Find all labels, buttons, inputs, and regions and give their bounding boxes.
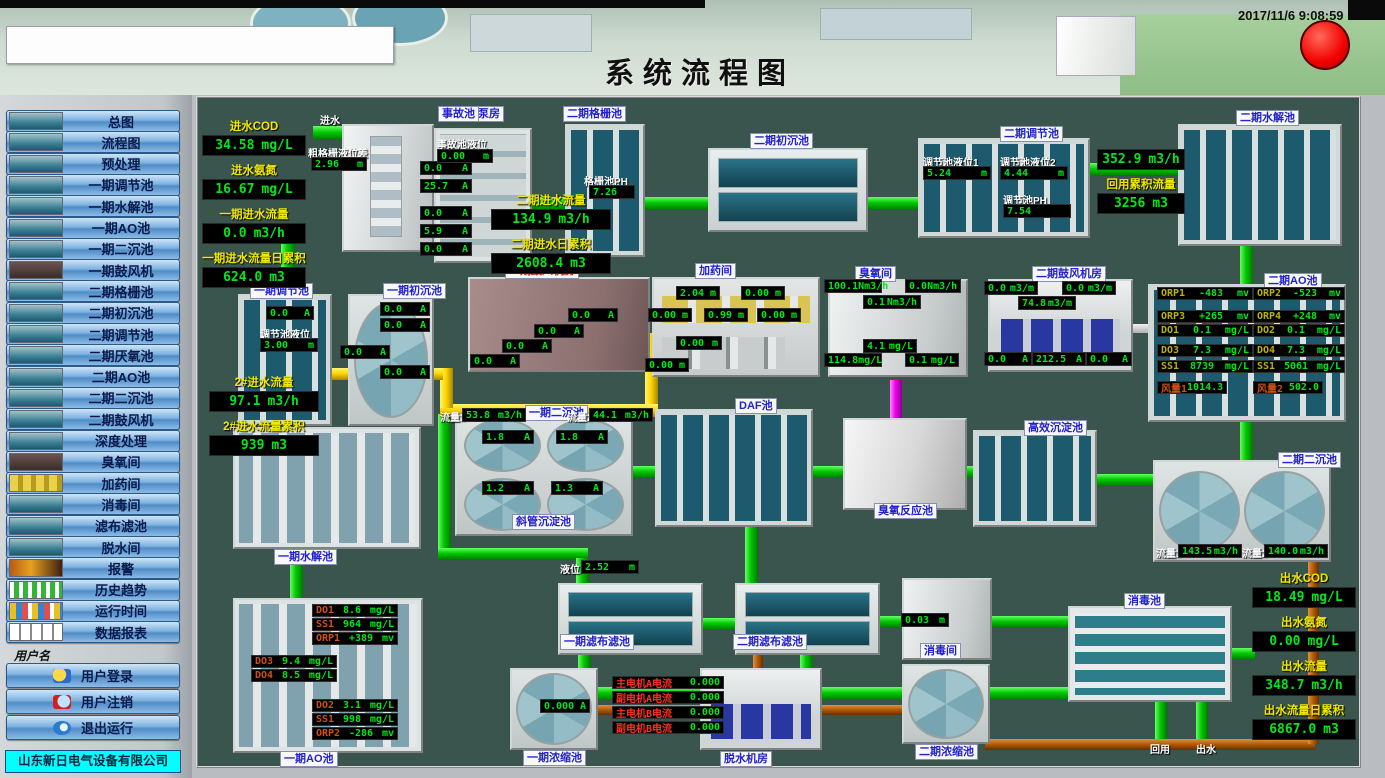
sidebar-item-label: 消毒间 xyxy=(63,495,179,514)
sidebar-item-14[interactable]: 二期二沉池 xyxy=(6,387,180,409)
sidebar-item-label: 一期调节池 xyxy=(63,175,179,194)
nav-thumbnail xyxy=(9,474,63,492)
nav-thumbnail xyxy=(9,602,63,620)
nav-thumbnail xyxy=(9,432,63,450)
sidebar-item-11[interactable]: 二期调节池 xyxy=(6,323,180,345)
username-label: 用户名 xyxy=(14,647,50,664)
sidebar-item-label: 二期调节池 xyxy=(63,325,179,344)
sidebar-item-label: 报警 xyxy=(63,559,179,578)
sidebar-item-5[interactable]: 一期水解池 xyxy=(6,195,180,217)
nav-thumbnail xyxy=(9,282,63,300)
user-button-label: 用户注销 xyxy=(81,692,133,711)
header-blank-panel xyxy=(6,26,394,64)
flow-diagram-panel xyxy=(196,96,1361,768)
sidebar-item-24[interactable]: 运行时间 xyxy=(6,600,180,622)
sidebar-item-23[interactable]: 历史趋势 xyxy=(6,579,180,601)
sidebar-item-6[interactable]: 一期AO池 xyxy=(6,217,180,239)
sidebar-item-3[interactable]: 预处理 xyxy=(6,153,180,175)
nav-thumbnail xyxy=(9,240,63,258)
phase1-regulating-tank-label[interactable]: 一期调节池 xyxy=(250,283,313,299)
phase1-secondary-clarifier-label[interactable]: 一期二沉池 xyxy=(525,405,588,421)
phase1-blower-room-label[interactable]: 一期鼓风机房 xyxy=(505,263,579,279)
ozone-reactor-tank-label[interactable]: 臭氧反应池 xyxy=(874,503,937,519)
nav-thumbnail xyxy=(9,410,63,428)
sidebar-item-16[interactable]: 深度处理 xyxy=(6,430,180,452)
user-login-icon xyxy=(53,669,71,683)
plant-photo-building xyxy=(820,8,972,40)
user-button-label: 退出运行 xyxy=(81,718,133,737)
phase2-thickener-label[interactable]: 二期浓缩池 xyxy=(915,744,978,760)
inclined-tube-sed-tank-label[interactable]: 斜管沉淀池 xyxy=(512,514,575,530)
phase1-ao-tank-label[interactable]: 一期AO池 xyxy=(280,751,338,767)
sidebar-item-21[interactable]: 脱水间 xyxy=(6,536,180,558)
accident-tank-label[interactable]: 事故池 xyxy=(438,106,479,122)
sidebar-item-label: 二期格栅池 xyxy=(63,282,179,301)
plant-photo-building xyxy=(1056,16,1136,76)
page-title: 系统流程图 xyxy=(570,50,830,92)
phase2-ao-tank-label[interactable]: 二期AO池 xyxy=(1264,273,1322,289)
nav-thumbnail xyxy=(9,389,63,407)
sidebar-item-label: 脱水间 xyxy=(63,538,179,557)
sidebar-item-25[interactable]: 数据报表 xyxy=(6,621,180,643)
nav-thumbnail xyxy=(9,581,63,599)
sidebar-item-4[interactable]: 一期调节池 xyxy=(6,174,180,196)
sidebar-item-20[interactable]: 滤布滤池 xyxy=(6,515,180,537)
sidebar-item-label: 滤布滤池 xyxy=(63,516,179,535)
nav-thumbnail xyxy=(9,112,63,130)
nav-thumbnail xyxy=(9,155,63,173)
phase2-blower-room-label[interactable]: 二期鼓风机房 xyxy=(1032,266,1106,282)
top-black-bar xyxy=(0,0,705,8)
dewatering-room-label[interactable]: 脱水机房 xyxy=(720,751,772,767)
nav-thumbnail xyxy=(9,623,63,641)
sidebar-item-19[interactable]: 消毒间 xyxy=(6,493,180,515)
nav-thumbnail xyxy=(9,517,63,535)
sidebar-item-17[interactable]: 臭氧间 xyxy=(6,451,180,473)
phase1-hydrolysis-tank-label[interactable]: 一期水解池 xyxy=(274,549,337,565)
sidebar-item-label: 深度处理 xyxy=(63,431,179,450)
alarm-indicator-button[interactable] xyxy=(1300,20,1350,70)
ozone-room-label[interactable]: 臭氧间 xyxy=(855,266,896,282)
sidebar-item-15[interactable]: 二期鼓风机 xyxy=(6,408,180,430)
phase1-thickener-label[interactable]: 一期浓缩池 xyxy=(523,750,586,766)
sidebar-nav: 总图流程图预处理一期调节池一期水解池一期AO池一期二沉池一期鼓风机二期格栅池二期… xyxy=(0,95,192,778)
header-banner: 系统流程图 2017/11/6 9:08:59 xyxy=(0,0,1385,95)
sidebar-item-label: 臭氧间 xyxy=(63,452,179,471)
nav-thumbnail xyxy=(9,559,63,577)
sidebar-item-label: 一期AO池 xyxy=(63,218,179,237)
sidebar-item-1[interactable]: 总图 xyxy=(6,110,180,132)
nav-thumbnail xyxy=(9,304,63,322)
sidebar-item-label: 历史趋势 xyxy=(63,580,179,599)
sidebar-item-22[interactable]: 报警 xyxy=(6,557,180,579)
phase1-primary-sed-tank-label[interactable]: 一期初沉池 xyxy=(383,283,446,299)
sidebar-item-label: 数据报表 xyxy=(63,623,179,642)
top-corner-block xyxy=(1348,0,1385,20)
dosing-room-label[interactable]: 加药间 xyxy=(695,263,736,279)
sidebar-item-label: 二期二沉池 xyxy=(63,388,179,407)
sidebar-item-label: 总图 xyxy=(63,112,179,131)
scada-app: { "header": { "title": "系统流程图", "timesta… xyxy=(0,0,1385,778)
nav-thumbnail xyxy=(9,538,63,556)
company-name: 山东新日电气设备有限公司 xyxy=(5,750,181,773)
sidebar-item-label: 二期AO池 xyxy=(63,367,179,386)
sidebar-item-label: 二期厌氧池 xyxy=(63,346,179,365)
sidebar-item-label: 一期二沉池 xyxy=(63,239,179,258)
sidebar-item-12[interactable]: 二期厌氧池 xyxy=(6,344,180,366)
sidebar-item-13[interactable]: 二期AO池 xyxy=(6,366,180,388)
nav-thumbnail xyxy=(9,261,63,279)
nav-thumbnail xyxy=(9,197,63,215)
nav-thumbnail xyxy=(9,453,63,471)
phase2-secondary-clarifier-label[interactable]: 二期二沉池 xyxy=(1278,452,1341,468)
exit-run-icon xyxy=(53,721,71,735)
phase2-cloth-filter-tank-label[interactable]: 二期滤布滤池 xyxy=(733,634,807,650)
sidebar-item-label: 二期鼓风机 xyxy=(63,410,179,429)
nav-thumbnail xyxy=(9,346,63,364)
user-button-label: 用户登录 xyxy=(81,666,133,685)
plant-photo-building xyxy=(470,14,592,52)
user-button-1[interactable]: 用户登录 xyxy=(6,663,180,688)
sidebar-item-10[interactable]: 二期初沉池 xyxy=(6,302,180,324)
phase2-primary-sed-tank-label[interactable]: 二期初沉池 xyxy=(750,133,813,149)
user-button-2[interactable]: 用户注销 xyxy=(6,689,180,714)
sidebar-item-9[interactable]: 二期格栅池 xyxy=(6,280,180,302)
nav-thumbnail xyxy=(9,219,63,237)
sidebar-item-label: 一期鼓风机 xyxy=(63,261,179,280)
disinfection-room-label[interactable]: 消毒间 xyxy=(920,643,961,659)
nav-thumbnail xyxy=(9,495,63,513)
user-button-3[interactable]: 退出运行 xyxy=(6,715,180,740)
nav-thumbnail xyxy=(9,133,63,151)
sidebar-item-label: 预处理 xyxy=(63,154,179,173)
phase2-grille-tank-label[interactable]: 二期格栅池 xyxy=(563,106,626,122)
nav-thumbnail xyxy=(9,176,63,194)
disinfection-tank-label[interactable]: 消毒池 xyxy=(1124,593,1165,609)
phase1-cloth-filter-tank-label[interactable]: 一期滤布滤池 xyxy=(560,634,634,650)
daf-tank-label[interactable]: DAF池 xyxy=(735,398,777,414)
nav-thumbnail xyxy=(9,325,63,343)
sidebar-item-18[interactable]: 加药间 xyxy=(6,472,180,494)
phase2-regulating-tank-label[interactable]: 二期调节池 xyxy=(1000,126,1063,142)
high-efficiency-sed-tank-label[interactable]: 高效沉淀池 xyxy=(1024,420,1087,436)
nav-thumbnail xyxy=(9,368,63,386)
sidebar-item-label: 一期水解池 xyxy=(63,197,179,216)
sidebar-item-8[interactable]: 一期鼓风机 xyxy=(6,259,180,281)
sidebar-item-2[interactable]: 流程图 xyxy=(6,131,180,153)
user-logout-icon xyxy=(53,695,71,709)
sidebar-item-label: 运行时间 xyxy=(63,601,179,620)
sidebar-item-label: 加药间 xyxy=(63,474,179,493)
sidebar-item-label: 流程图 xyxy=(63,133,179,152)
sidebar-item-7[interactable]: 一期二沉池 xyxy=(6,238,180,260)
phase2-hydrolysis-tank-label[interactable]: 二期水解池 xyxy=(1236,110,1299,126)
sidebar-item-label: 二期初沉池 xyxy=(63,303,179,322)
